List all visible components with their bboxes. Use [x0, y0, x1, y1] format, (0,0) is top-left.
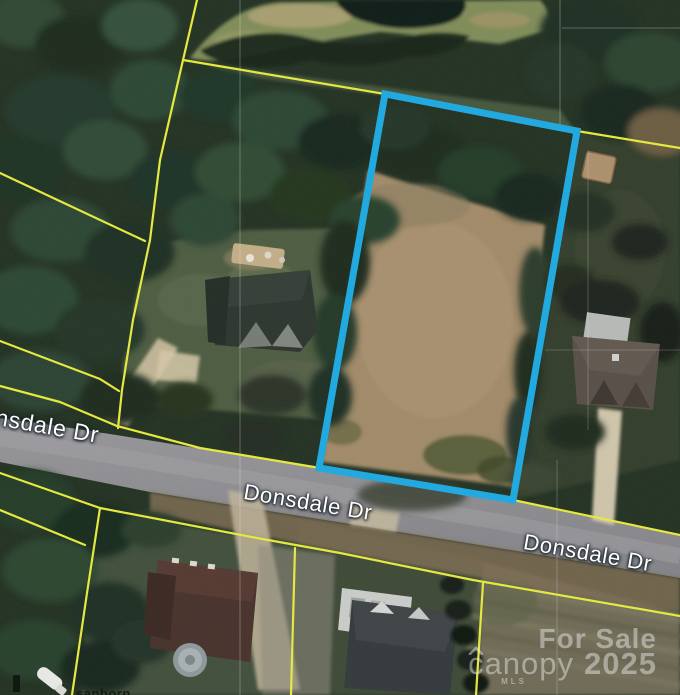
photo-grain — [0, 0, 680, 695]
attribution-glyph — [13, 675, 20, 692]
attribution: sanborn — [0, 660, 200, 695]
brand-watermark: canopy MLS 2025 — [468, 646, 657, 682]
attribution-text: sanborn — [76, 686, 131, 695]
satellite-map[interactable]: nsdale Dr Donsdale Dr Donsdale Dr For Sa… — [0, 0, 680, 695]
canopy-roof-icon — [468, 646, 484, 655]
aerial-imagery — [0, 0, 680, 695]
mls-label: MLS — [501, 677, 527, 686]
canopy-logo: canopy MLS — [468, 646, 574, 682]
year-watermark: 2025 — [584, 646, 657, 682]
